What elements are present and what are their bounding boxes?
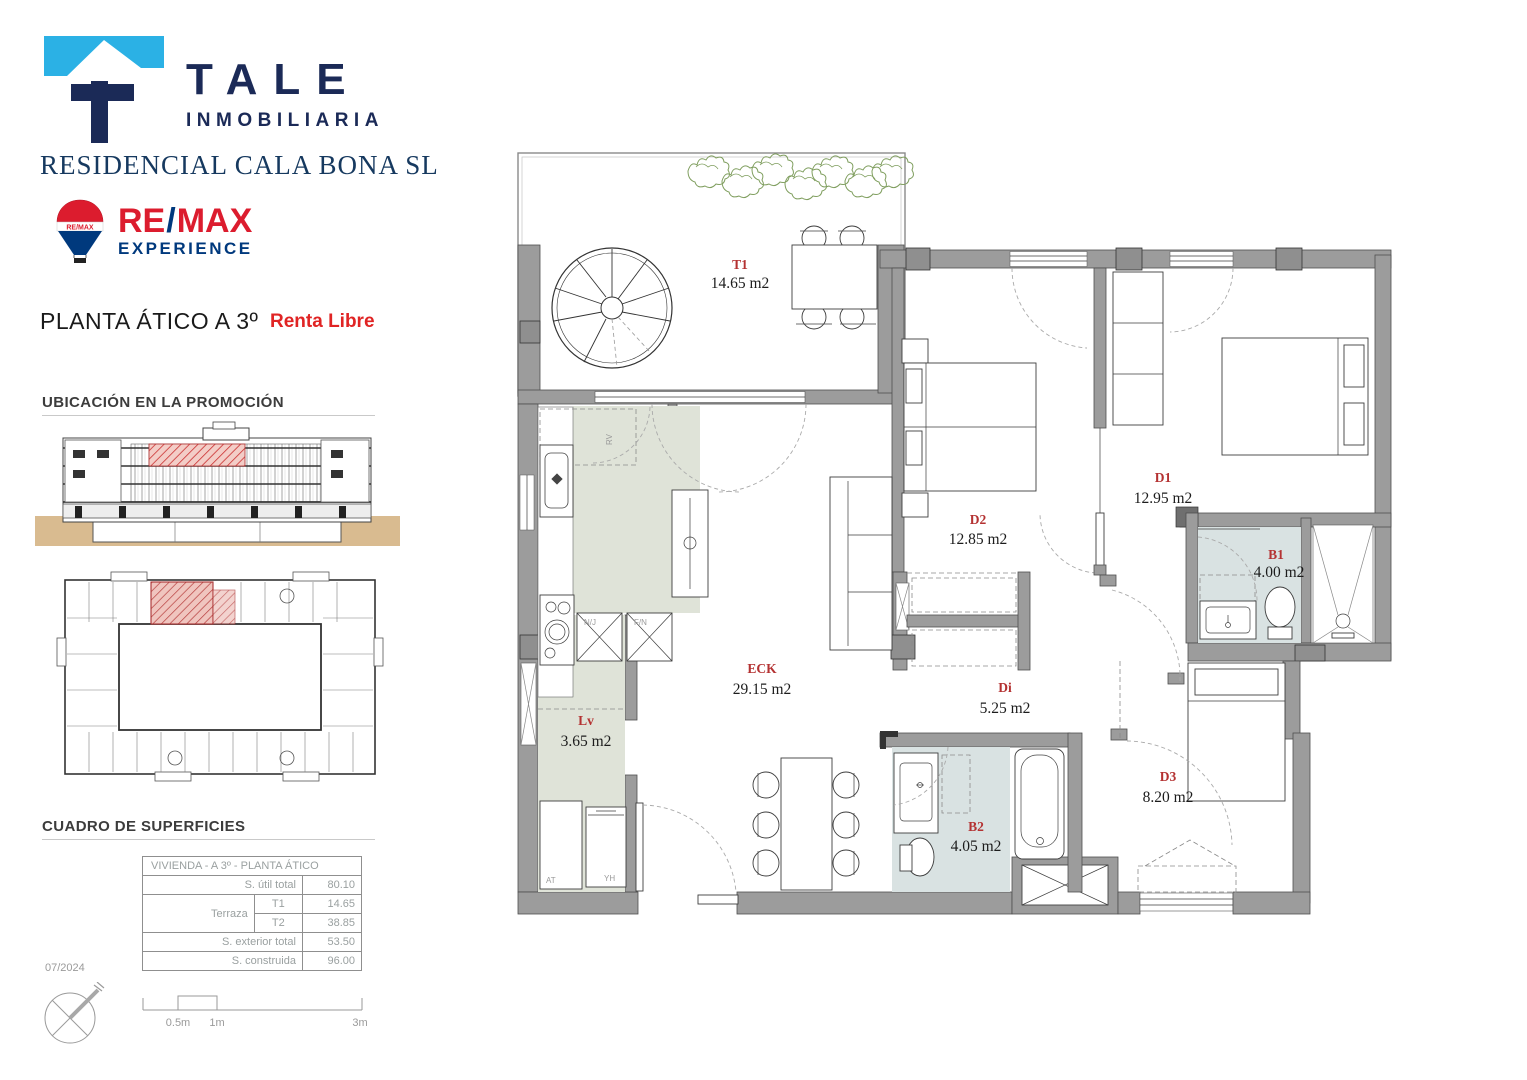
scale-tick: 3m bbox=[352, 1017, 367, 1029]
room-area: 12.85 m2 bbox=[949, 531, 1008, 548]
cabinet-label: RV bbox=[605, 433, 614, 445]
bed-d2 bbox=[902, 339, 1036, 517]
page-title: PLANTA ÁTICO A 3º bbox=[40, 308, 258, 335]
surfaces-heading: CUADRO DE SUPERFICIES bbox=[42, 818, 375, 835]
room-area: 14.65 m2 bbox=[711, 275, 770, 292]
remax-wordmark: RE/MAX EXPERIENCE bbox=[118, 204, 253, 259]
unit-highlight bbox=[149, 444, 245, 466]
bed-d1 bbox=[1113, 272, 1368, 455]
surfaces-section-header: CUADRO DE SUPERFICIES bbox=[42, 818, 375, 840]
room-area: 12.95 m2 bbox=[1134, 490, 1193, 507]
divider bbox=[42, 839, 375, 840]
tale-logo bbox=[44, 32, 174, 160]
remax-re: RE bbox=[118, 202, 165, 240]
appliance-label: AT bbox=[546, 876, 556, 885]
table-value: 38.85 bbox=[302, 914, 361, 933]
scale-tick: 0.5m bbox=[166, 1017, 190, 1029]
spiral-staircase bbox=[552, 248, 672, 368]
room-code: Di bbox=[998, 680, 1012, 695]
appliance-label: YH bbox=[604, 874, 615, 883]
table-label: Terraza bbox=[143, 895, 255, 933]
brand-name: TALE bbox=[186, 58, 384, 102]
location-section-header: UBICACIÓN EN LA PROMOCIÓN bbox=[42, 394, 375, 416]
remax-max: MAX bbox=[177, 202, 253, 240]
remax-experience: EXPERIENCE bbox=[118, 239, 253, 259]
location-heading: UBICACIÓN EN LA PROMOCIÓN bbox=[42, 394, 375, 411]
compass-icon bbox=[38, 982, 108, 1048]
rent-type-tag: Renta Libre bbox=[270, 311, 375, 333]
table-sublabel: T2 bbox=[254, 914, 302, 933]
t-mark-icon bbox=[91, 81, 108, 143]
sofa bbox=[830, 477, 892, 650]
room-code: D2 bbox=[970, 512, 987, 527]
room-code: D3 bbox=[1160, 769, 1177, 784]
brand-block: TALE INMOBILIARIA bbox=[186, 58, 384, 132]
room-area: 3.65 m2 bbox=[561, 733, 612, 750]
bed-d3 bbox=[1120, 661, 1285, 892]
room-code: D1 bbox=[1155, 470, 1172, 485]
surfaces-table: VIVIENDA - A 3º - PLANTA ÁTICO S. útil t… bbox=[142, 856, 362, 971]
shaft-label: F/N bbox=[634, 618, 647, 627]
building-elevation bbox=[35, 420, 400, 548]
room-code: T1 bbox=[732, 257, 748, 272]
table-value: 14.65 bbox=[302, 895, 361, 914]
room-area: 5.25 m2 bbox=[980, 700, 1031, 717]
room-code: ECK bbox=[747, 661, 777, 676]
remax-slash: / bbox=[165, 202, 176, 240]
table-value: 53.50 bbox=[302, 933, 361, 952]
table-title: VIVIENDA - A 3º - PLANTA ÁTICO bbox=[143, 857, 362, 876]
room-area: 29.15 m2 bbox=[733, 681, 792, 698]
table-value: 80.10 bbox=[302, 876, 361, 895]
key-plan bbox=[55, 560, 385, 792]
table-label: S. construida bbox=[143, 952, 303, 971]
remax-balloon-icon: RE/MAX bbox=[52, 198, 108, 264]
remax-logo: RE/MAX RE/MAX EXPERIENCE bbox=[52, 198, 253, 264]
shaft-label: N/J bbox=[584, 618, 596, 627]
room-area: 8.20 m2 bbox=[1143, 789, 1194, 806]
roof-icon bbox=[44, 36, 164, 76]
table-label: S. útil total bbox=[143, 876, 303, 895]
floor-plan-sheet: TALE INMOBILIARIA RESIDENCIAL CALA BONA … bbox=[0, 0, 1527, 1080]
brand-subtitle: INMOBILIARIA bbox=[186, 110, 384, 132]
floor-plan: RV N/J F/N bbox=[500, 145, 1420, 957]
room-code: B2 bbox=[968, 819, 984, 834]
date-label: 07/2024 bbox=[45, 962, 85, 974]
scale-tick: 1m bbox=[209, 1017, 224, 1029]
divider bbox=[42, 415, 375, 416]
balloon-text: RE/MAX bbox=[66, 225, 94, 232]
company-name: RESIDENCIAL CALA BONA SL bbox=[40, 150, 439, 181]
room-area: 4.00 m2 bbox=[1254, 564, 1305, 581]
room-code: Lv bbox=[578, 713, 594, 728]
table-sublabel: T1 bbox=[254, 895, 302, 914]
room-code: B1 bbox=[1268, 547, 1284, 562]
scale-bar: 0.5m 1m 3m bbox=[142, 988, 382, 1033]
room-area: 4.05 m2 bbox=[951, 838, 1002, 855]
dining-table bbox=[753, 758, 859, 890]
table-label: S. exterior total bbox=[143, 933, 303, 952]
table-value: 96.00 bbox=[302, 952, 361, 971]
